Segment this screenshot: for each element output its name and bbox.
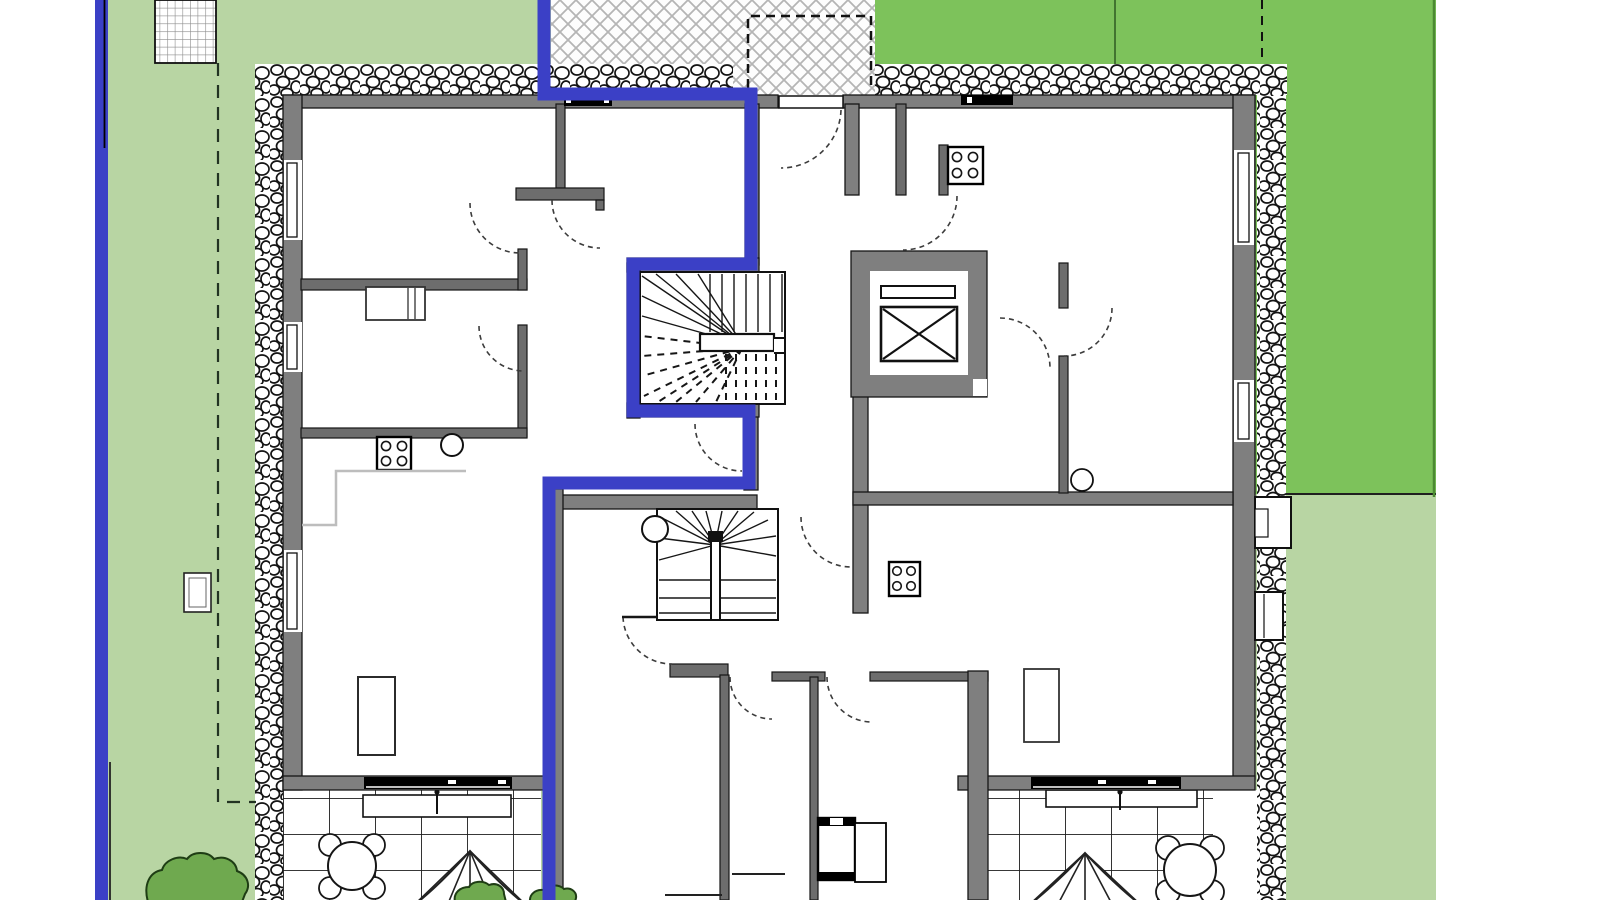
stairwell-lower	[642, 509, 778, 620]
patio-table	[328, 842, 376, 890]
radiator-cabinet	[366, 287, 425, 320]
stair-handrail	[700, 334, 774, 351]
stairwell-upper	[640, 272, 785, 404]
furniture-right-room	[1024, 669, 1059, 742]
window-well-1	[1255, 497, 1291, 548]
sink-fixture	[441, 434, 463, 456]
window-left-2	[284, 322, 302, 372]
window-left-1	[284, 160, 302, 240]
floor-plan-drawing	[0, 0, 1600, 900]
property-line-blue	[95, 0, 108, 900]
elevator-door-gap	[973, 379, 987, 396]
drain-grate	[155, 0, 216, 63]
window-well-2	[1255, 592, 1283, 640]
wc-circle-fixture	[1071, 469, 1093, 491]
cooktop-fixture-left	[377, 437, 411, 470]
window-right-2	[1234, 380, 1254, 442]
furniture-bottom-center	[818, 818, 886, 882]
patio-table	[1164, 844, 1216, 896]
cooktop-fixture-topright	[948, 147, 983, 184]
vent-bar-top-2	[961, 95, 1013, 105]
sliding-door-right	[1031, 777, 1181, 789]
cooktop-fixture-lowerright	[889, 562, 920, 596]
window-right-1	[1234, 150, 1254, 245]
elevator	[851, 251, 987, 397]
floor-plan-screenshot	[0, 0, 1600, 900]
utility-box	[184, 573, 211, 612]
column-circle	[642, 516, 668, 542]
patio-set-right	[1156, 836, 1224, 900]
entrance-door-leaf	[779, 96, 843, 108]
window-left-3	[284, 550, 302, 632]
sliding-door-left	[364, 777, 512, 789]
stair-newel	[708, 531, 723, 542]
patio-set-left	[319, 834, 385, 899]
lower-rooms-cutoff	[552, 790, 988, 900]
furniture-left-room	[358, 677, 395, 755]
